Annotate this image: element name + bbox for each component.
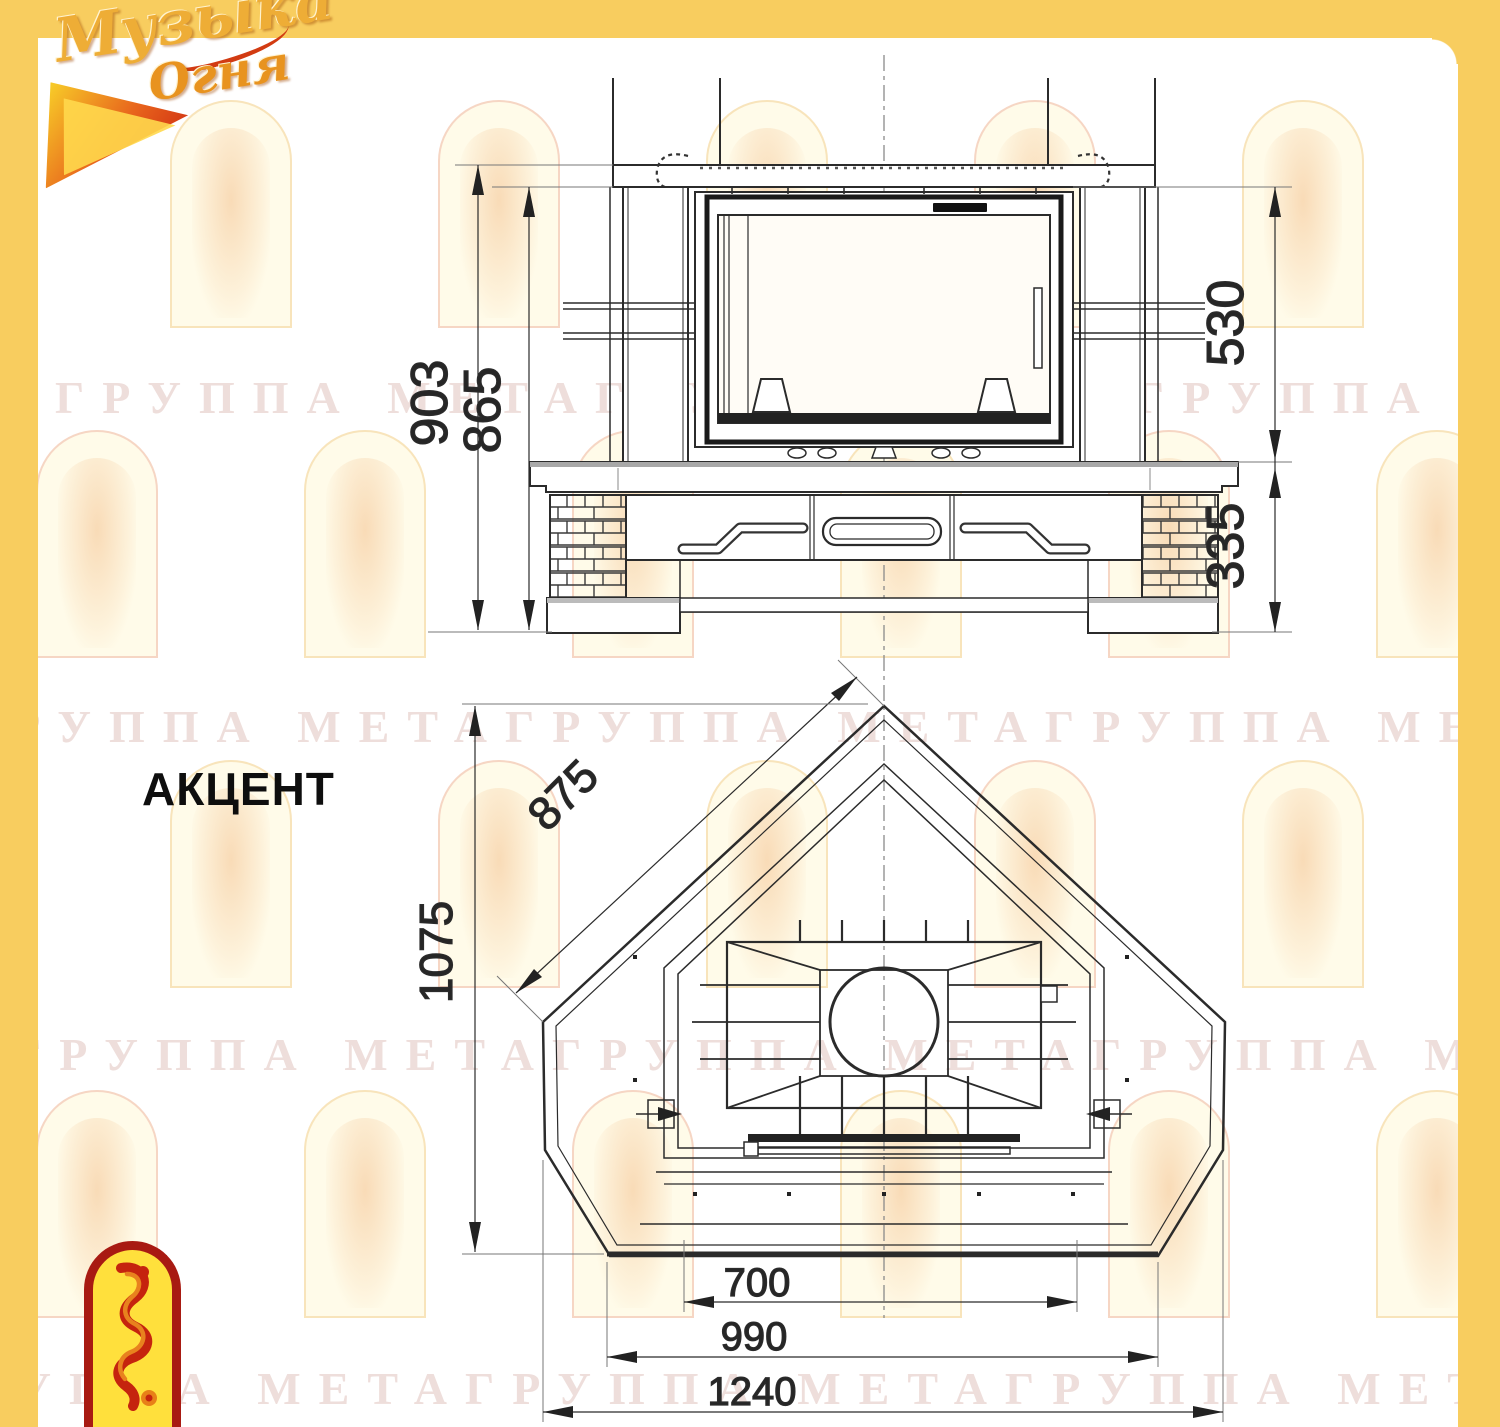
frame-corner [1432,38,1458,64]
frame-left-stripe [0,0,38,1427]
insert-brand-mark [933,203,987,212]
technical-drawing: 903 865 530 335 [0,0,1500,1427]
firebird-arch-logo [84,1241,181,1427]
dim-side-edge: 875 [517,749,608,840]
pillar-right [1080,187,1145,462]
dim-depth: 1075 [410,901,462,1003]
glass-bottom-bar [718,413,1050,423]
model-title: АКЦЕНТ [142,762,335,816]
dim-overall-height: 903 [401,360,459,447]
dim-firebox-width: 700 [724,1261,791,1305]
dim-base-height: 335 [1197,503,1255,590]
plan-dimensions: 875 1075 700 990 1240 [410,660,1223,1422]
mantel-shelf [613,165,1155,187]
front-view [530,78,1238,633]
frame-right-stripe [1458,0,1500,1427]
brick-column-left [550,495,626,598]
dim-overall-width: 1240 [708,1370,797,1414]
firebird-flame-icon [93,1250,172,1427]
page: { "logo_top": { "word1": "Музыка", "word… [0,0,1500,1427]
dim-front-width: 990 [721,1315,788,1359]
plinth-right [1088,598,1218,633]
door-feet [788,447,980,458]
pillar-left [623,187,688,462]
plinth-middle [680,598,1088,612]
dim-height-to-shelf: 865 [454,367,512,454]
dim-firebox-height: 530 [1197,280,1255,367]
plinth-left [547,598,680,633]
door-handle [1034,288,1042,368]
